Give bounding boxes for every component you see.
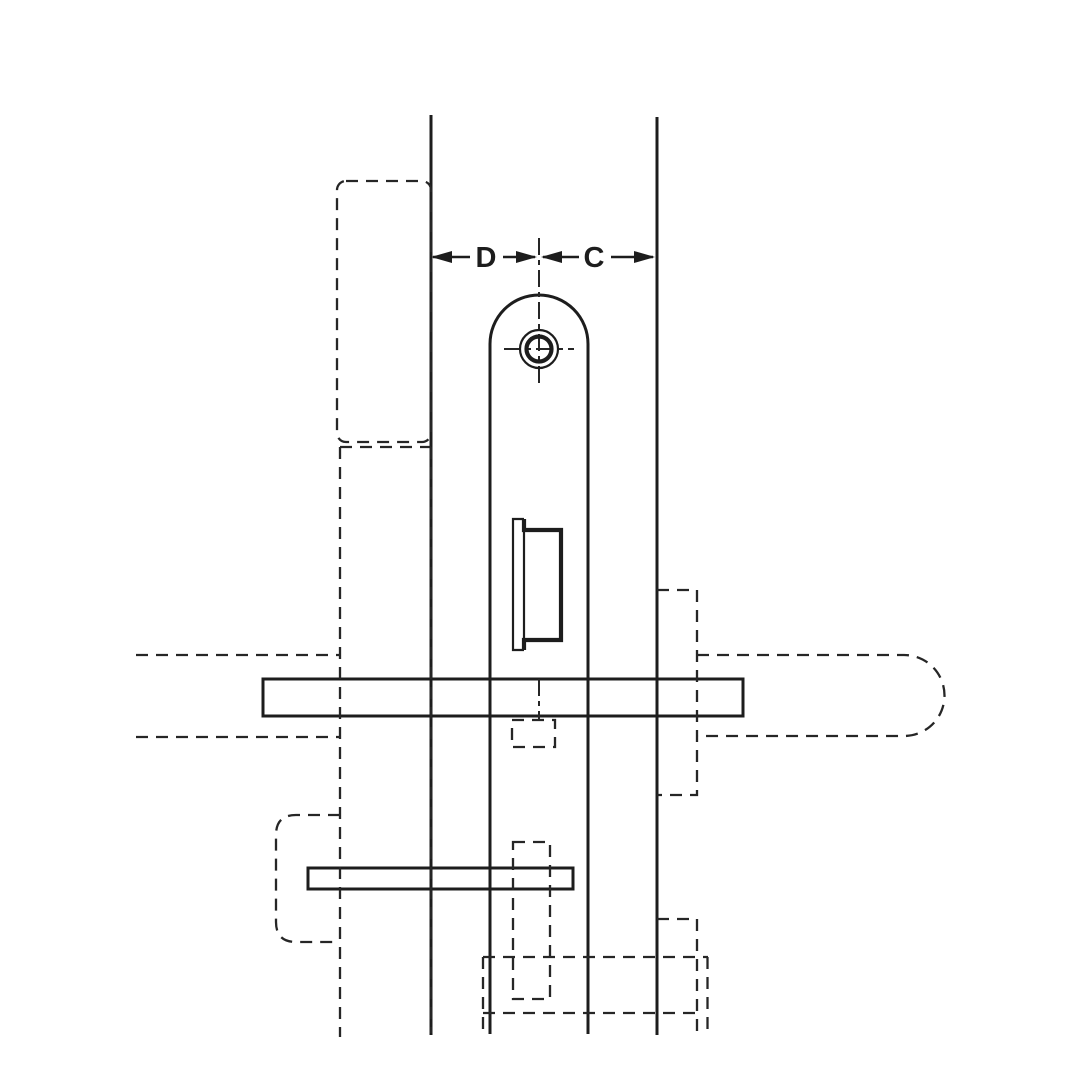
dimension-c-arrow-left-icon [541, 251, 562, 263]
spindle-bar-lower [308, 868, 573, 889]
door-edge-lines [431, 115, 657, 1035]
latch-flange-outline [513, 519, 524, 650]
spindle-guide-small-outline [512, 720, 555, 747]
hidden-handle-left [136, 655, 340, 942]
lock-installation-diagram: D C [0, 0, 1080, 1080]
handle-hub-right-outline [657, 590, 697, 795]
mortise-faceplate [490, 295, 588, 1034]
dimension-d-arrow-left-icon [431, 251, 452, 263]
lock-case-upper-left-outline [337, 181, 431, 442]
handle-right-grip-outline [697, 655, 945, 736]
hidden-handle-right [657, 590, 945, 795]
dimension-d-arrow-right-icon [516, 251, 537, 263]
lower-guide-tall-outline [513, 842, 550, 999]
hidden-lock-case-left [337, 181, 431, 1037]
latch-bolt [513, 519, 561, 650]
screw-hole [504, 238, 574, 386]
diagram-canvas: D C [0, 0, 1080, 1080]
hidden-lock-case-bottom [483, 919, 708, 1035]
dimension-label-d: D [476, 242, 497, 274]
dimension-label-c: C [584, 242, 605, 274]
latch-body-outline [524, 519, 561, 650]
dimension-c-arrow-right-icon [634, 251, 655, 263]
spindle-bar-upper [263, 679, 743, 716]
latch-body-inner-line [524, 530, 561, 640]
spindle-bars [263, 679, 743, 889]
dimension-annotation: D C [431, 242, 655, 274]
